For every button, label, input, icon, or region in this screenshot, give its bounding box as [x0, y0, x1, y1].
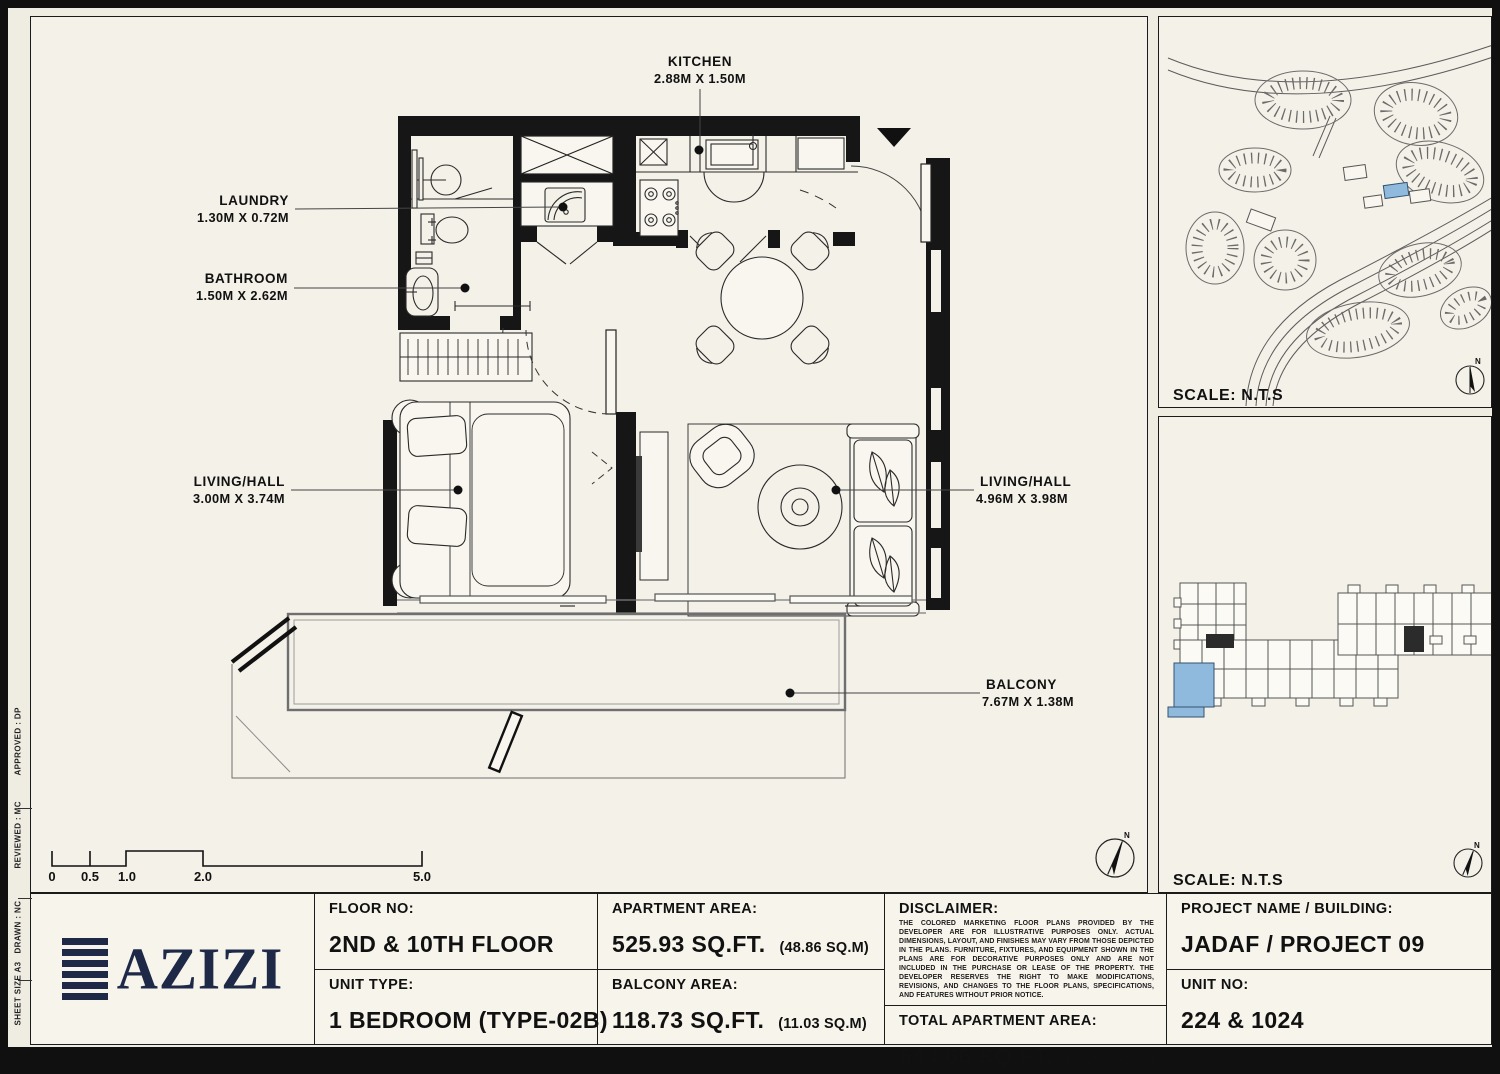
- site-north-compass-icon: N: [1456, 357, 1484, 394]
- coffee-table: [758, 465, 842, 549]
- apartment-area-label: APARTMENT AREA:: [612, 901, 872, 917]
- total-area-label: TOTAL APARTMENT AREA:: [899, 1013, 1154, 1029]
- shaft-closet: [521, 136, 613, 174]
- key-plan-drawing: SCALE: N.T.S N: [1159, 417, 1491, 892]
- balcony-area-cell: BALCONY AREA: 118.73 SQ.FT.(11.03 SQ.M): [598, 969, 884, 1045]
- dining-set: [689, 225, 836, 371]
- unit-type-cell: UNIT TYPE: 1 BEDROOM (TYPE-02B): [315, 969, 597, 1045]
- svg-text:1.0: 1.0: [118, 869, 136, 884]
- paper-sheet: KITCHEN 2.88M X 1.50M LAUNDRY 1.30M X 0.…: [8, 8, 1492, 1047]
- sheet-size-note: SHEET SIZE A3: [14, 1004, 23, 1026]
- svg-text:0: 0: [48, 869, 55, 884]
- balcony: [232, 614, 845, 778]
- floorplan-drawing: KITCHEN 2.88M X 1.50M LAUNDRY 1.30M X 0.…: [31, 17, 1147, 892]
- key-scale-label: SCALE: N.T.S: [1173, 872, 1283, 889]
- armchair: [682, 416, 763, 495]
- apartment-area-cell: APARTMENT AREA: 525.93 SQ.FT.(48.86 SQ.M…: [598, 894, 884, 969]
- floor-no-value: 2ND & 10TH FLOOR: [329, 931, 585, 958]
- svg-text:2.0: 2.0: [194, 869, 212, 884]
- room-label-laundry: LAUNDRY 1.30M X 0.72M: [197, 193, 567, 225]
- site-highlighted-plot: [1383, 182, 1409, 198]
- balcony-area-label: BALCONY AREA:: [612, 977, 872, 993]
- svg-text:BALCONY: BALCONY: [986, 677, 1057, 692]
- floorplan-panel: KITCHEN 2.88M X 1.50M LAUNDRY 1.30M X 0.…: [30, 16, 1148, 893]
- svg-text:LIVING/HALL: LIVING/HALL: [980, 474, 1071, 489]
- unit-no-value: 224 & 1024: [1181, 1007, 1479, 1034]
- project-cell: PROJECT NAME / BUILDING: JADAF / PROJECT…: [1167, 894, 1491, 969]
- svg-text:4.96M X 3.98M: 4.96M X 3.98M: [976, 491, 1068, 506]
- sofa: [847, 424, 919, 616]
- site-building-clusters: [1186, 71, 1491, 366]
- svg-text:BATHROOM: BATHROOM: [205, 271, 288, 286]
- key-north-compass-icon: N: [1454, 841, 1482, 877]
- disclaimer-cell: DISCLAIMER: THE COLORED MARKETING FLOOR …: [885, 894, 1166, 1005]
- key-plan-panel: SCALE: N.T.S N: [1158, 416, 1492, 893]
- bedroom-door-swing: [526, 330, 610, 414]
- project-label: PROJECT NAME / BUILDING:: [1181, 901, 1479, 917]
- svg-text:7.67M X 1.38M: 7.67M X 1.38M: [982, 694, 1074, 709]
- svg-text:3.00M X 3.74M: 3.00M X 3.74M: [193, 491, 285, 506]
- total-area-value: 644.66 SQ.FT.: [899, 1043, 1053, 1069]
- svg-text:2.88M X 1.50M: 2.88M X 1.50M: [654, 71, 746, 86]
- developer-logo: AZIZI: [31, 894, 314, 1044]
- floorplan-sheet: { "plan": { "labels": [ { "name": "KITCH…: [0, 0, 1500, 1055]
- margin-tick: [18, 898, 32, 899]
- project-value: JADAF / PROJECT 09: [1181, 931, 1479, 958]
- floor-no-label: FLOOR NO:: [329, 901, 585, 917]
- drawn-note: DRAWN : NC: [14, 932, 23, 954]
- unit-type-label: UNIT TYPE:: [329, 977, 585, 993]
- svg-text:LAUNDRY: LAUNDRY: [219, 193, 289, 208]
- wardrobe: [400, 333, 532, 381]
- entrance-marker-icon: [877, 128, 911, 147]
- svg-text:0.5: 0.5: [81, 869, 99, 884]
- svg-text:LIVING/HALL: LIVING/HALL: [194, 474, 285, 489]
- balcony-area-sqm: (11.03 SQ.M): [778, 1016, 867, 1032]
- key-highlighted-unit: [1168, 663, 1214, 717]
- disclaimer-label: DISCLAIMER:: [899, 901, 1154, 917]
- svg-text:1.50M X 2.62M: 1.50M X 2.62M: [196, 288, 288, 303]
- site-scale-label: SCALE: N.T.S: [1173, 387, 1283, 404]
- title-block: AZIZI FLOOR NO: 2ND & 10TH FLOOR UNIT TY…: [30, 893, 1492, 1045]
- site-roads: [1168, 44, 1491, 406]
- site-map-panel: SCALE: N.T.S N: [1158, 16, 1492, 408]
- apartment-area-value: 525.93 SQ.FT.: [612, 931, 766, 957]
- total-area-sqm: (59.89 SQ.M): [1067, 1052, 1156, 1068]
- svg-text:1.30M X 0.72M: 1.30M X 0.72M: [197, 210, 289, 225]
- svg-text:N: N: [1474, 841, 1480, 850]
- dining-table: [721, 257, 803, 339]
- azizi-bars-icon: [62, 938, 108, 1000]
- reviewed-note: REVIEWED : MC: [14, 847, 23, 869]
- site-map-drawing: SCALE: N.T.S N: [1159, 17, 1491, 407]
- scale-bar-numbers: 0 0.5 1.0 2.0 5.0: [48, 869, 431, 884]
- north-compass-icon: N: [1096, 831, 1134, 877]
- svg-text:N: N: [1124, 831, 1130, 840]
- media-console: [636, 432, 668, 580]
- scale-bar: [52, 851, 422, 866]
- svg-text:N: N: [1475, 357, 1481, 366]
- tv-icon: [636, 456, 642, 552]
- svg-text:5.0: 5.0: [413, 869, 431, 884]
- apartment-area-sqm: (48.86 SQ.M): [780, 940, 869, 956]
- azizi-wordmark: AZIZI: [117, 939, 284, 998]
- entry-door-leaf: [921, 164, 931, 242]
- disclaimer-text: THE COLORED MARKETING FLOOR PLANS PROVID…: [899, 920, 1154, 1001]
- balcony-area-value: 118.73 SQ.FT.: [612, 1007, 764, 1033]
- unit-no-cell: UNIT NO: 224 & 1024: [1167, 969, 1491, 1045]
- unit-no-label: UNIT NO:: [1181, 977, 1479, 993]
- approved-note: APPROVED : DP: [14, 754, 23, 776]
- room-label-kitchen: KITCHEN 2.88M X 1.50M: [654, 54, 746, 155]
- bedroom-door-leaf: [606, 330, 616, 414]
- unit-type-value: 1 BEDROOM (TYPE-02B): [329, 1007, 585, 1034]
- svg-text:KITCHEN: KITCHEN: [668, 54, 732, 69]
- entry-door-swing: [851, 166, 928, 243]
- floor-no-cell: FLOOR NO: 2ND & 10TH FLOOR: [315, 894, 597, 969]
- laundry-closet: [521, 182, 613, 264]
- total-area-cell: TOTAL APARTMENT AREA: 644.66 SQ.FT.(59.8…: [885, 1005, 1166, 1074]
- entry-door-swing-dashed: [800, 190, 836, 208]
- bed: [392, 400, 570, 598]
